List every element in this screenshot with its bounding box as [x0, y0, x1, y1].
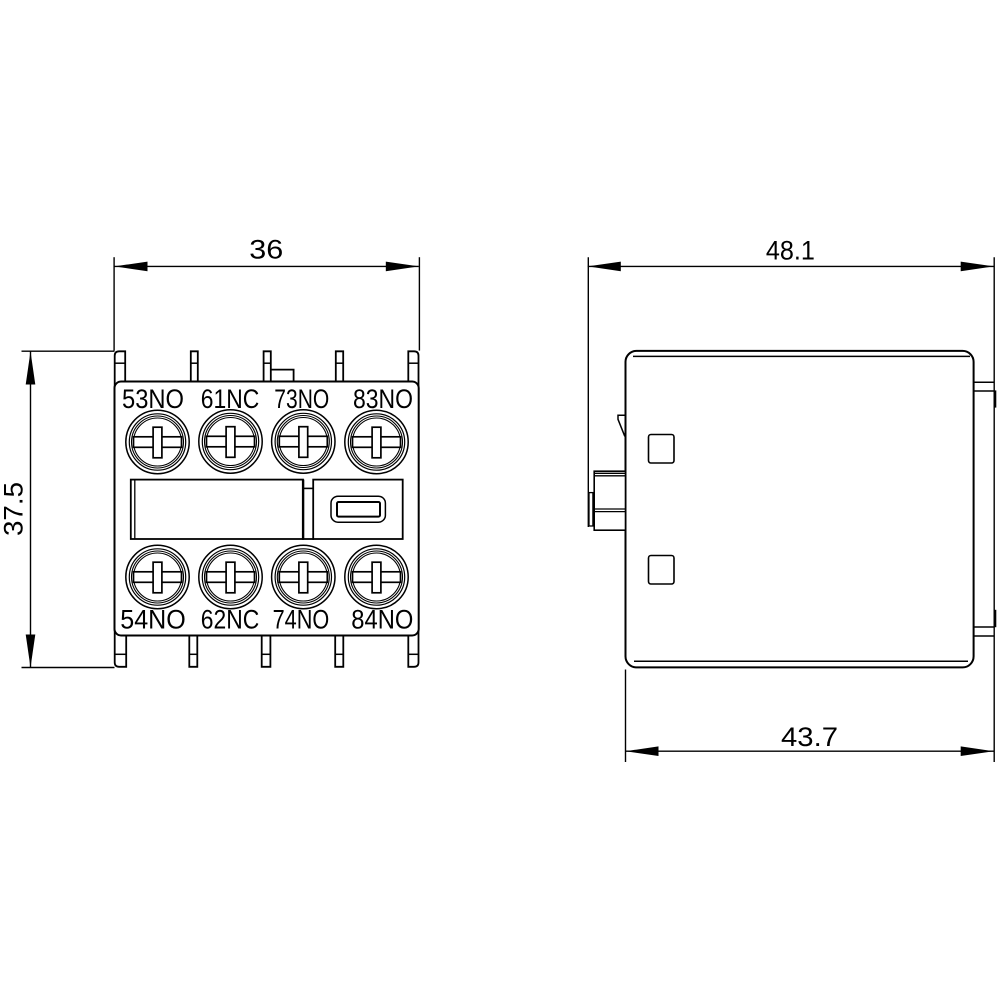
- svg-text:83NO: 83NO: [353, 384, 413, 414]
- svg-text:48.1: 48.1: [766, 234, 815, 265]
- svg-text:74NO: 74NO: [273, 604, 330, 634]
- svg-text:36: 36: [249, 234, 283, 265]
- svg-text:54NO: 54NO: [120, 604, 186, 634]
- svg-text:84NO: 84NO: [351, 604, 413, 634]
- svg-text:43.7: 43.7: [781, 721, 838, 752]
- svg-text:62NC: 62NC: [201, 604, 259, 634]
- svg-text:53NO: 53NO: [122, 384, 184, 414]
- svg-text:37.5: 37.5: [0, 482, 29, 536]
